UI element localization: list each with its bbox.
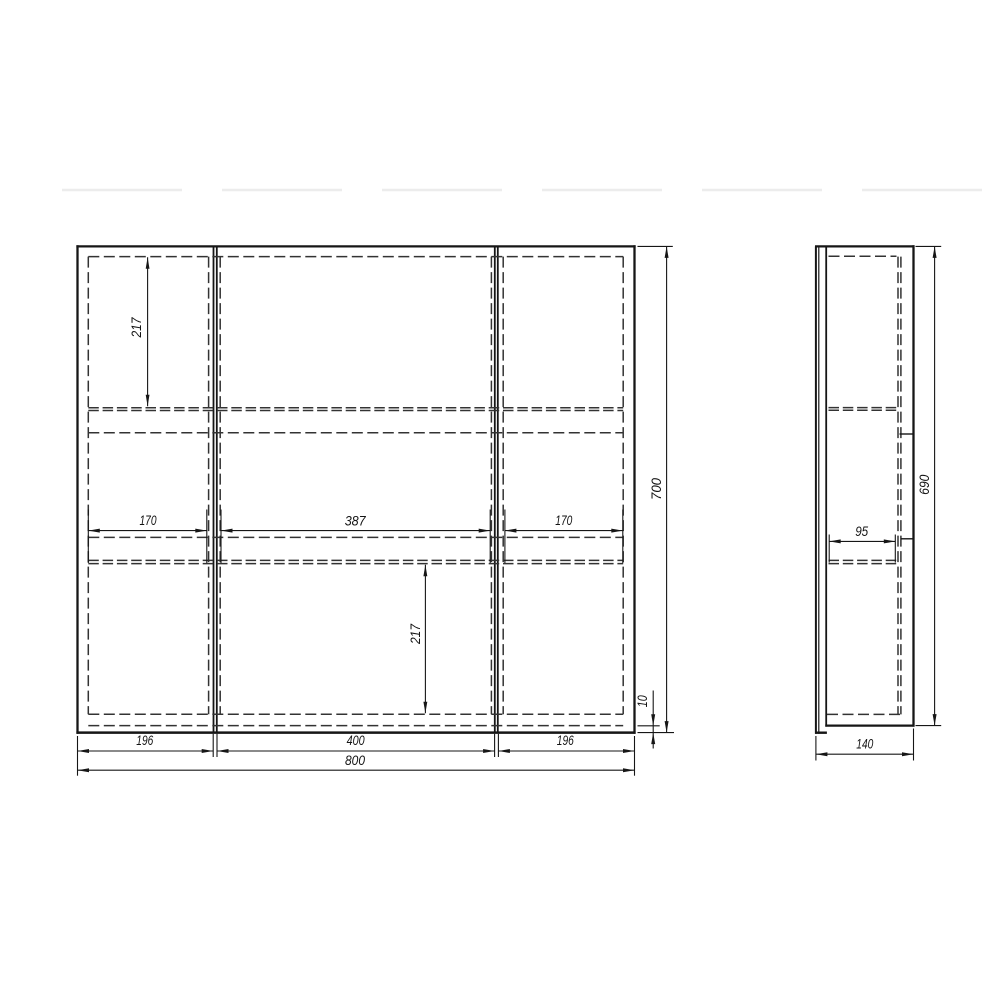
svg-text:700: 700 xyxy=(649,478,664,500)
svg-text:170: 170 xyxy=(140,513,157,528)
svg-text:387: 387 xyxy=(345,513,366,528)
svg-text:196: 196 xyxy=(557,733,574,748)
svg-text:217: 217 xyxy=(408,624,423,645)
svg-text:140: 140 xyxy=(856,736,873,751)
svg-text:95: 95 xyxy=(855,524,868,539)
svg-text:400: 400 xyxy=(347,733,365,748)
svg-text:690: 690 xyxy=(917,474,932,494)
svg-text:217: 217 xyxy=(129,317,144,338)
svg-text:170: 170 xyxy=(555,513,572,528)
svg-text:10: 10 xyxy=(635,695,650,707)
svg-text:196: 196 xyxy=(136,733,153,748)
svg-text:800: 800 xyxy=(345,753,365,768)
